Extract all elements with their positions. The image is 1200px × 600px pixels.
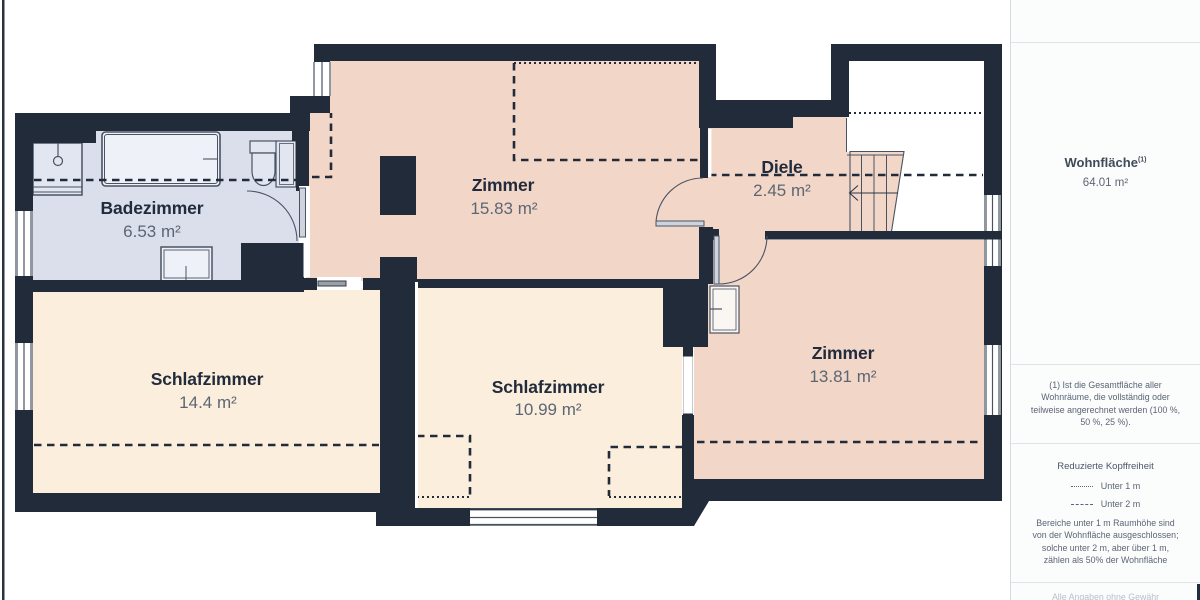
svg-text:6.53 m²: 6.53 m² [123, 222, 181, 241]
svg-text:Zimmer: Zimmer [472, 175, 535, 195]
svg-text:Schlafzimmer: Schlafzimmer [492, 377, 605, 397]
svg-text:Diele: Diele [761, 157, 803, 177]
svg-text:Zimmer: Zimmer [812, 343, 875, 363]
svg-text:Badezimmer: Badezimmer [100, 198, 203, 218]
svg-text:10.99 m²: 10.99 m² [514, 400, 581, 419]
svg-text:13.81 m²: 13.81 m² [809, 367, 876, 386]
svg-text:2.45 m²: 2.45 m² [753, 181, 811, 200]
svg-text:Schlafzimmer: Schlafzimmer [151, 369, 264, 389]
svg-text:15.83 m²: 15.83 m² [470, 199, 537, 218]
svg-text:14.4 m²: 14.4 m² [179, 393, 237, 412]
